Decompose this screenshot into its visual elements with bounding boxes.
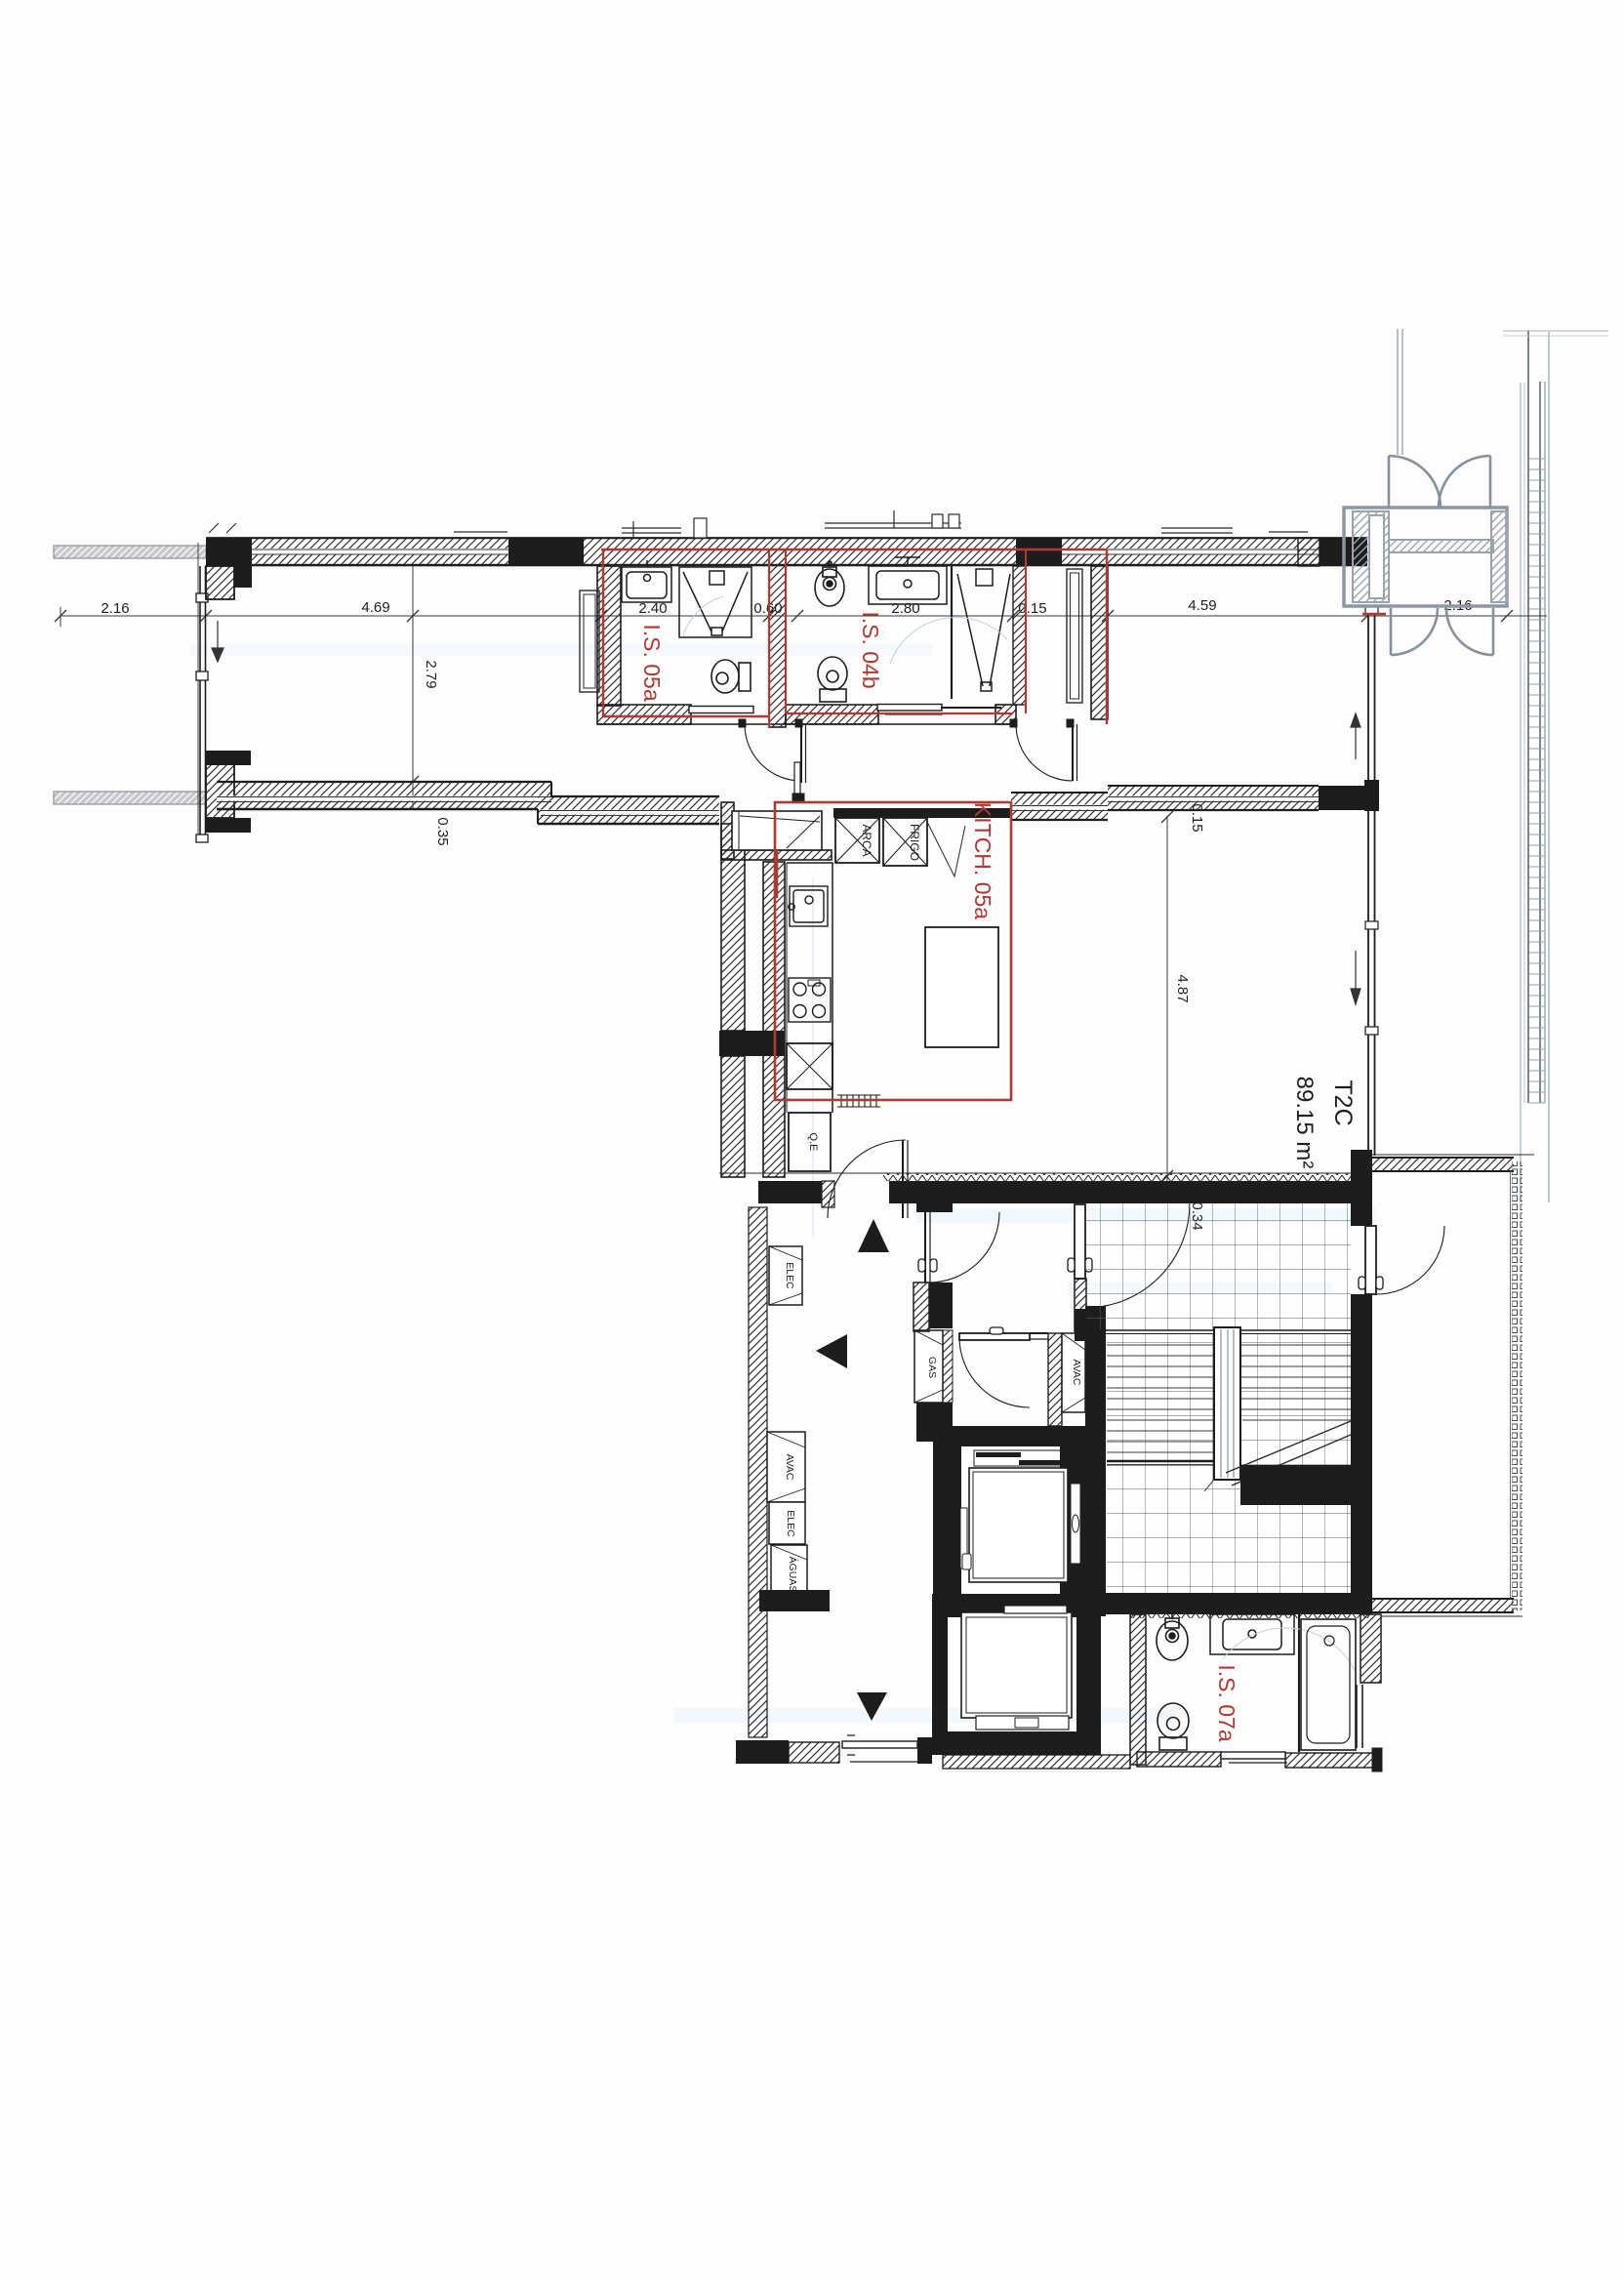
svg-text:2.79: 2.79 — [423, 660, 439, 688]
svg-text:0.35: 0.35 — [434, 817, 451, 845]
svg-text:ÁGUAS: ÁGUAS — [787, 1557, 799, 1593]
svg-text:FRIGO: FRIGO — [908, 824, 921, 861]
svg-text:ELEC: ELEC — [784, 1262, 795, 1289]
svg-text:I.S. 07a: I.S. 07a — [1214, 1664, 1239, 1741]
svg-text:2.16: 2.16 — [101, 600, 129, 617]
svg-text:4.69: 4.69 — [361, 599, 389, 616]
svg-text:AVAC: AVAC — [784, 1453, 795, 1480]
svg-text:89.15 m²: 89.15 m² — [1291, 1077, 1318, 1169]
svg-text:4.59: 4.59 — [1188, 597, 1216, 614]
svg-text:T2C: T2C — [1329, 1079, 1357, 1125]
svg-text:2.80: 2.80 — [891, 600, 919, 617]
svg-text:AVAC: AVAC — [1071, 1359, 1082, 1385]
svg-text:I.S. 04b: I.S. 04b — [858, 611, 883, 688]
svg-text:KITCH. 05a: KITCH. 05a — [970, 802, 995, 919]
svg-text:GAS: GAS — [926, 1357, 938, 1378]
svg-text:Q.E: Q.E — [807, 1133, 819, 1152]
svg-text:ARCA: ARCA — [860, 824, 873, 856]
svg-text:4.87: 4.87 — [1174, 974, 1191, 1002]
svg-text:ELEC: ELEC — [785, 1510, 796, 1537]
svg-text:I.S. 05a: I.S. 05a — [639, 624, 665, 701]
